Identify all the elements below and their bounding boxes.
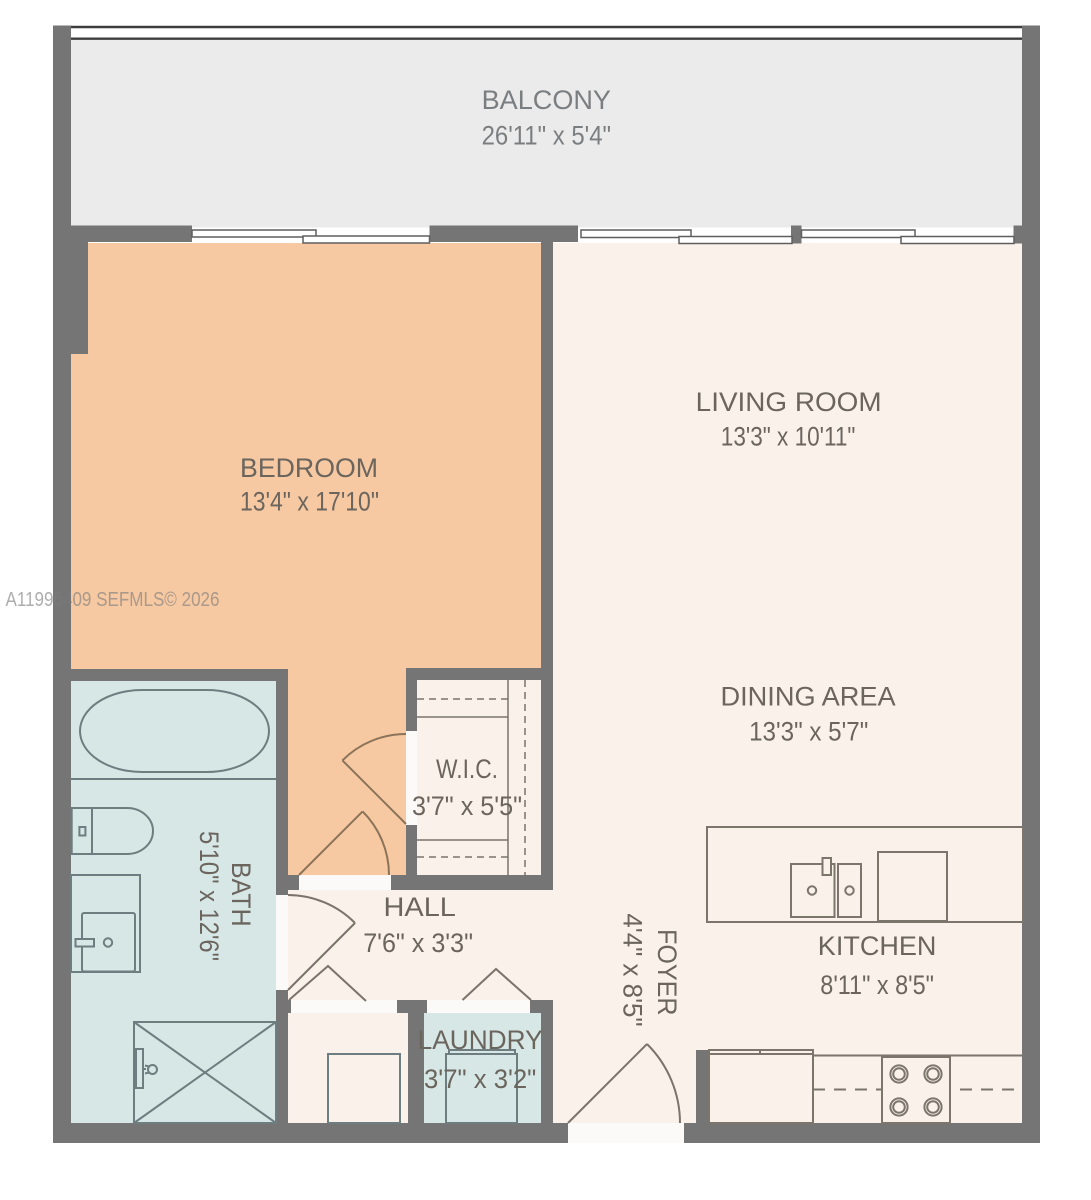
svg-text:8'11" x 8'5": 8'11" x 8'5" xyxy=(820,970,934,1000)
svg-text:13'4" x 17'10": 13'4" x 17'10" xyxy=(240,487,379,517)
svg-text:4'4" x 8'5": 4'4" x 8'5" xyxy=(618,913,648,1026)
svg-text:BEDROOM: BEDROOM xyxy=(240,453,378,483)
svg-text:3'7" x 5'5": 3'7" x 5'5" xyxy=(412,791,522,821)
svg-text:KITCHEN: KITCHEN xyxy=(818,931,937,961)
svg-text:7'6" x 3'3": 7'6" x 3'3" xyxy=(363,928,473,958)
svg-text:W.I.C.: W.I.C. xyxy=(436,754,498,784)
svg-text:3'7" x 3'2": 3'7" x 3'2" xyxy=(424,1064,536,1094)
svg-text:26'11" x 5'4": 26'11" x 5'4" xyxy=(482,121,611,151)
svg-text:BATH: BATH xyxy=(226,862,256,927)
svg-text:A11996409 SEFMLS© 2026: A11996409 SEFMLS© 2026 xyxy=(6,589,220,611)
svg-text:HALL: HALL xyxy=(384,892,456,922)
svg-text:13'3" x 10'11": 13'3" x 10'11" xyxy=(721,422,856,452)
svg-text:5'10" x 12'6": 5'10" x 12'6" xyxy=(194,831,224,961)
svg-text:LIVING ROOM: LIVING ROOM xyxy=(696,387,882,417)
svg-text:13'3" x 5'7": 13'3" x 5'7" xyxy=(749,716,868,746)
svg-text:LAUNDRY: LAUNDRY xyxy=(418,1025,543,1055)
svg-text:BALCONY: BALCONY xyxy=(482,85,611,115)
svg-text:FOYER: FOYER xyxy=(652,929,682,1016)
svg-text:DINING AREA: DINING AREA xyxy=(721,682,896,712)
